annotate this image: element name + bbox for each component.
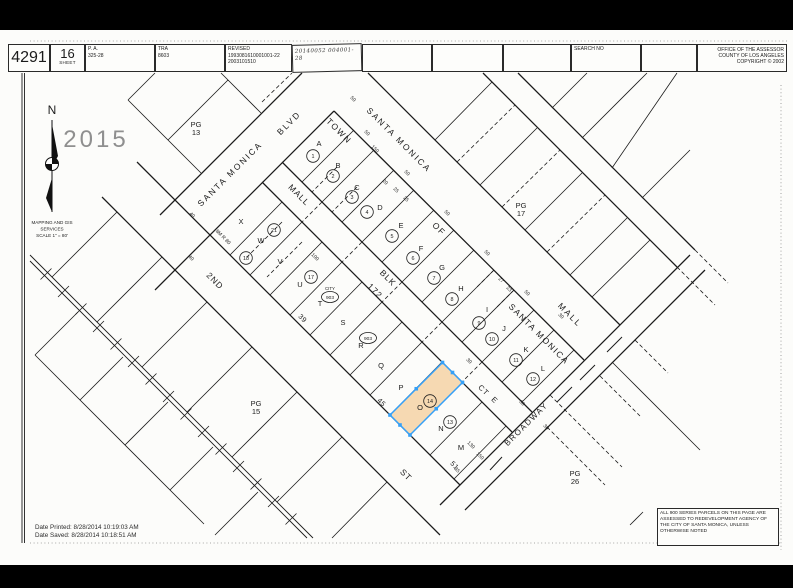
dimension-50: 50 (483, 249, 491, 257)
assessor-map-page: { "header": { "book": "4291", "sheet_num… (0, 0, 793, 588)
parcel-circle-3: 3 (346, 191, 359, 204)
search-no-label: SEARCH NO (574, 46, 638, 53)
dimension-27: 27 (497, 276, 505, 284)
handwritten-note: 20140052 004001-28 (292, 43, 363, 73)
selection-handle[interactable] (388, 413, 392, 417)
parcel-number-1: 1 (312, 154, 315, 160)
parcel-letter-E: E (398, 221, 403, 230)
parcel-number-12: 12 (530, 377, 536, 383)
parcel-circle-11: 11 (510, 354, 523, 367)
frontage-number-45: 45 (375, 397, 386, 408)
dimension-150: 150 (475, 451, 485, 461)
year-stamp: 2015 (63, 126, 128, 153)
parcel-letter-U: U (297, 280, 302, 289)
page-ref-17: 17 (517, 209, 525, 218)
parcel-number-3: 3 (351, 195, 354, 201)
city-caption: CITY (325, 286, 335, 291)
parcel-letter-J: J (502, 324, 506, 333)
street-label-e: E (489, 395, 500, 406)
empty-cell-1 (362, 44, 432, 72)
parcel-number-4: 4 (366, 210, 369, 216)
parcel-number-6: 6 (412, 256, 415, 262)
parcel-letter-X: X (238, 217, 243, 226)
selection-handle[interactable] (414, 387, 418, 391)
empty-cell-4 (641, 44, 697, 72)
parcel-number-2: 2 (332, 174, 335, 180)
parcel-letter-L: L (541, 364, 545, 373)
parcel-letter-T: T (318, 299, 323, 308)
pa-cell: P. A. 325-28 (85, 44, 155, 72)
parcel-letter-H: H (458, 284, 463, 293)
parcel-letter-F: F (419, 244, 424, 253)
parcel-number-21: 21 (271, 228, 277, 234)
selection-handle[interactable] (408, 433, 412, 437)
tract-label-town: TOWN (324, 116, 354, 146)
parcel-letter-P: P (398, 383, 403, 392)
dimension-50: 50 (403, 169, 411, 177)
parcel-letter-I: I (486, 305, 488, 314)
tra-cell: TRA 8603 (155, 44, 225, 72)
selection-handle[interactable] (434, 407, 438, 411)
date-printed: Date Printed: 8/28/2014 10:19:03 AM (35, 524, 139, 532)
sheet-cell: 16 SHEET (50, 44, 85, 72)
parcel-circle-5: 5 (386, 230, 399, 243)
selection-handle[interactable] (441, 361, 445, 365)
dimension-30: 30 (518, 399, 526, 407)
parcel-letter-G: G (439, 263, 445, 272)
parcel-circle-903: 903CITY (322, 286, 339, 303)
scan-bottom-bar (0, 565, 793, 588)
street-label-mall-corridor: MALL (286, 182, 312, 208)
parcel-circle-1: 1 (307, 150, 320, 163)
revised-value-2: 2003101510 (228, 59, 289, 66)
parcel-number-14: 14 (427, 399, 433, 405)
parcel-circle-4: 4 (361, 206, 374, 219)
assessor-office-cell: OFFICE OF THE ASSESSOR COUNTY OF LOS ANG… (697, 44, 787, 72)
sheet-number: 16 (53, 47, 82, 60)
map-book-number: 4291 (8, 44, 50, 72)
parcel-letter-V: V (277, 257, 282, 266)
date-saved: Date Saved: 8/28/2014 10:18:51 AM (35, 532, 139, 540)
page-ref-15: 15 (252, 407, 260, 416)
parcel-number-5: 5 (391, 234, 394, 240)
parcel-letter-N: N (438, 424, 443, 433)
parcel-circle-2: 2 (327, 170, 340, 183)
parcel-circle-6: 6 (407, 252, 420, 265)
page-ref-13: 13 (192, 128, 200, 137)
dimension-25: 25 (392, 186, 400, 194)
dimension-130: 130 (466, 440, 476, 450)
tract-label-172: 172 (366, 281, 385, 300)
parcel-number-9: 9 (478, 321, 481, 327)
street-label-broadway: BROADWAY (503, 401, 550, 448)
dimension-30: 30 (542, 423, 550, 431)
dimension-30: 30 (465, 357, 473, 365)
dimension-8M R 80: 8M R 80 (214, 228, 232, 246)
gis-caption-line-1: MAPPING AND GIS (31, 220, 72, 225)
tra-value: 8603 (158, 53, 222, 60)
parcel-circle-9: 9 (473, 317, 486, 330)
parcel-circle-13: 13 (444, 416, 457, 429)
parcel-letter-K: K (523, 345, 528, 354)
note-line-4: NOTED (690, 529, 707, 534)
dimension-40: 40 (188, 211, 196, 219)
railroad-ticks (41, 269, 297, 525)
parcel-circle-17: 17 (305, 271, 318, 284)
scan-top-bar (0, 0, 793, 30)
parcel-letter-Q: Q (378, 361, 384, 370)
parcel-number-903: 903 (326, 295, 334, 301)
dimension-50: 50 (443, 209, 451, 217)
street-label-st: ST (398, 467, 414, 483)
dimension-100: 100 (310, 252, 320, 262)
parcel-number-903: 903 (364, 336, 372, 342)
parcel-circle-903: 903 (360, 333, 377, 344)
parcel-number-10: 10 (489, 337, 495, 343)
parcel-circle-21: 21 (268, 224, 281, 237)
street-label-santa-monica-mall-1: SANTA MONICA (365, 105, 434, 174)
note-line-1: ALL 900 SERIES PARCELS ON THIS PAGE ARE (660, 511, 766, 516)
page-ref-26: 26 (571, 477, 579, 486)
street-label-ct: CT (476, 383, 491, 398)
date-stamps: Date Printed: 8/28/2014 10:19:03 AM Date… (35, 524, 139, 540)
parcel-letter-M: M (458, 443, 464, 452)
sheet-label: SHEET (53, 60, 82, 67)
parcel-circle-18: 18 (240, 252, 253, 265)
parcel-number-7: 7 (433, 276, 436, 282)
map-frame-left-border (22, 73, 25, 543)
parcel-circle-10: 10 (486, 333, 499, 346)
street-label-santa-monica-blvd-2: BLVD (275, 109, 303, 137)
parcel-letter-D: D (377, 203, 383, 212)
parcel-number-18: 18 (243, 256, 249, 262)
parcel-circle-12: 12 (527, 373, 540, 386)
gis-caption-line-3: SCALE 1" = 80' (36, 233, 68, 238)
empty-cell-2 (432, 44, 503, 72)
redevelopment-note-box: ALL 900 SERIES PARCELS ON THIS PAGE ARE … (657, 508, 779, 546)
pa-value: 325-28 (88, 53, 152, 60)
dimension-40: 40 (187, 254, 195, 262)
selection-handle[interactable] (451, 371, 455, 375)
tract-label-blk: BLK (378, 268, 399, 289)
parcel-map[interactable]: SANTA MONICABLVDSANTA MONICAMALLMALLTOWN… (0, 0, 793, 588)
north-compass (46, 120, 59, 212)
parcel-circle-8: 8 (446, 293, 459, 306)
parcel-letter-A: A (316, 139, 321, 148)
note-tick (630, 512, 643, 525)
empty-cell-3 (503, 44, 571, 72)
dimension-25: 25 (402, 195, 410, 203)
street-label-santa-monica-blvd-1: SANTA MONICA (195, 139, 264, 208)
dimension-50: 50 (349, 95, 357, 103)
tract-label-of: OF (430, 220, 448, 238)
dimension-20: 20 (381, 178, 389, 186)
dimension-50: 50 (523, 289, 531, 297)
dimension-50: 50 (363, 129, 371, 137)
year-stamp-2015: 2015 (63, 126, 128, 153)
compass-lower-blade (46, 178, 52, 212)
revised-cell: REVISED 1993081610001001-22 2003101510 (225, 44, 292, 72)
selection-handle[interactable] (398, 423, 402, 427)
search-no-cell: SEARCH NO (571, 44, 641, 72)
parcel-letter-O: O (417, 403, 423, 412)
selection-handle[interactable] (461, 381, 465, 385)
parcel-circle-7: 7 (428, 272, 441, 285)
dashed-lines (247, 73, 728, 485)
parcel-letter-W: W (257, 236, 265, 245)
north-label: N (48, 103, 57, 117)
parcel-letter-B: B (335, 161, 340, 170)
parcel-number-17: 17 (308, 275, 314, 281)
parcel-letter-S: S (340, 318, 345, 327)
parcel-number-11: 11 (513, 358, 519, 364)
parcel-letter-C: C (354, 183, 360, 192)
parcel-number-13: 13 (447, 420, 453, 426)
parcel-number-8: 8 (451, 297, 454, 303)
office-line-3: COPYRIGHT © 2002 (700, 59, 784, 65)
street-label-2nd: 2ND (205, 270, 226, 291)
railroad-lines (30, 255, 313, 538)
gis-caption-line-2: SERVICES (40, 227, 63, 232)
